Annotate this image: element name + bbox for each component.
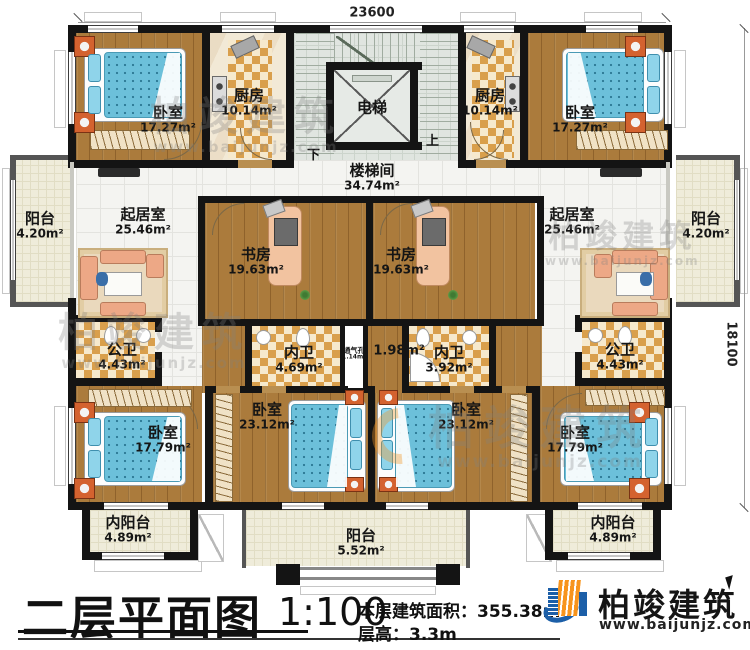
room-area: 4.20m² bbox=[682, 228, 729, 242]
room-name: 卧室 bbox=[438, 401, 494, 418]
balcony-threshold bbox=[70, 162, 74, 298]
computer-monitor bbox=[422, 218, 446, 246]
corridor-area-label: 1.98m² bbox=[373, 345, 424, 360]
window-sill bbox=[674, 406, 686, 486]
wall bbox=[68, 378, 162, 386]
wall bbox=[402, 386, 496, 393]
sofa bbox=[100, 250, 146, 264]
room-area: 10.14m² bbox=[462, 105, 518, 119]
room-label-bath-public-l: 公卫 4.43m² bbox=[98, 341, 145, 372]
room-name: 楼梯间 bbox=[344, 162, 400, 179]
room-label-balcony-r: 阳台 4.20m² bbox=[682, 210, 729, 241]
room-label-bath-en-l: 内卫 4.69m² bbox=[275, 344, 322, 375]
room-area: 17.79m² bbox=[547, 442, 603, 456]
armchair bbox=[146, 254, 164, 278]
window bbox=[568, 552, 630, 560]
dimension-width: 23600 bbox=[349, 6, 394, 21]
nightstand bbox=[629, 478, 650, 499]
balcony-wall bbox=[676, 302, 740, 307]
dimension-line bbox=[78, 22, 666, 23]
window-sill bbox=[2, 168, 10, 294]
room-name: 卧室 bbox=[552, 104, 608, 121]
room-area: 19.63m² bbox=[228, 264, 284, 278]
balcony-window bbox=[734, 180, 740, 280]
wall bbox=[326, 62, 334, 150]
door-opening bbox=[262, 386, 286, 393]
pillow bbox=[647, 86, 660, 114]
room-label-stairwell: 楼梯间 34.74m² bbox=[344, 162, 400, 193]
room-label-vent: 通气孔 1.14m² bbox=[342, 347, 366, 362]
wall bbox=[286, 25, 294, 168]
room-label-kitchen-r: 厨房 10.14m² bbox=[462, 87, 518, 118]
room-name: 阳台 bbox=[682, 210, 729, 227]
window-sill bbox=[54, 50, 66, 128]
pillow bbox=[350, 408, 362, 438]
room-label-bedroom-bcr: 卧室 23.12m² bbox=[438, 401, 494, 432]
wall bbox=[520, 25, 528, 168]
nightstand bbox=[625, 112, 646, 133]
room-label-kitchen-l: 厨房 10.14m² bbox=[221, 87, 277, 118]
balcony-rail bbox=[466, 510, 470, 568]
room-label-living-l: 起居室 25.46m² bbox=[115, 206, 171, 237]
room-area: 34.74m² bbox=[344, 180, 400, 194]
window-sill bbox=[94, 560, 202, 572]
dimension-tick bbox=[73, 13, 82, 22]
balcony-post bbox=[436, 564, 460, 585]
pillow bbox=[645, 450, 658, 478]
door-opening bbox=[216, 386, 240, 393]
room-area: 5.52m² bbox=[337, 545, 384, 559]
window bbox=[330, 25, 422, 33]
room-label-inner-balcony-r: 内阳台 4.89m² bbox=[589, 514, 636, 545]
wall bbox=[245, 319, 252, 393]
person bbox=[640, 272, 652, 286]
room-area: 17.27m² bbox=[552, 122, 608, 136]
door-opening bbox=[155, 332, 162, 352]
room-name: 内卫 bbox=[275, 344, 322, 361]
room-area: 4.43m² bbox=[596, 359, 643, 373]
room-area: 25.46m² bbox=[115, 224, 171, 238]
wall bbox=[68, 160, 208, 168]
wall bbox=[326, 62, 422, 70]
room-label-study-r: 书房 19.63m² bbox=[373, 246, 429, 277]
room-area: 4.43m² bbox=[98, 359, 145, 373]
door-opening bbox=[238, 160, 272, 168]
balcony-door bbox=[282, 502, 324, 510]
room-name: 内阳台 bbox=[104, 514, 151, 531]
room-name: 卧室 bbox=[140, 104, 196, 121]
room-label-balcony-l: 阳台 4.20m² bbox=[16, 210, 63, 241]
room-name: 书房 bbox=[373, 246, 429, 263]
pillow bbox=[88, 418, 101, 446]
room-area: 4.89m² bbox=[589, 532, 636, 546]
balcony-rail bbox=[242, 510, 246, 568]
window bbox=[222, 25, 274, 33]
title-underline bbox=[18, 638, 560, 640]
balcony-door bbox=[386, 502, 428, 510]
room-name: 电梯 bbox=[357, 99, 387, 116]
balcony-rail bbox=[300, 567, 436, 570]
room-area: 4.20m² bbox=[16, 228, 63, 242]
room-name: 阳台 bbox=[337, 527, 384, 544]
floor-height-value: 3.3m bbox=[409, 625, 457, 645]
window bbox=[88, 25, 138, 33]
sofa bbox=[612, 250, 658, 264]
room-name: 厨房 bbox=[221, 87, 277, 104]
balcony-post bbox=[276, 564, 300, 585]
room-area: 10.14m² bbox=[221, 105, 277, 119]
nightstand bbox=[345, 477, 364, 492]
nightstand bbox=[74, 478, 95, 499]
wall bbox=[537, 196, 544, 326]
room-area: 17.79m² bbox=[135, 442, 191, 456]
window bbox=[102, 552, 164, 560]
room-name: 卧室 bbox=[547, 424, 603, 441]
wall bbox=[575, 378, 672, 386]
pillow bbox=[645, 418, 658, 446]
room-label-bath-public-r: 公卫 4.43m² bbox=[596, 341, 643, 372]
wall bbox=[489, 319, 496, 393]
pillow bbox=[350, 440, 362, 470]
balcony-door bbox=[104, 502, 168, 510]
window-sill bbox=[460, 12, 516, 22]
plant bbox=[448, 290, 458, 300]
room-label-bedroom-br: 卧室 17.79m² bbox=[547, 424, 603, 455]
ac-platform bbox=[198, 514, 224, 562]
computer-monitor bbox=[274, 218, 298, 246]
elevator-door bbox=[352, 75, 392, 82]
nightstand bbox=[379, 477, 398, 492]
stair-up-label: 上 bbox=[426, 130, 439, 149]
room-area: 4.69m² bbox=[275, 362, 322, 376]
floor-area-label: 本层建筑面积： bbox=[358, 602, 477, 622]
wall bbox=[245, 386, 348, 393]
room-label-inner-balcony-l: 内阳台 4.89m² bbox=[104, 514, 151, 545]
door-opening bbox=[502, 386, 526, 393]
nightstand bbox=[625, 36, 646, 57]
window-sill bbox=[556, 560, 664, 572]
room-area: 1.14m² bbox=[342, 355, 366, 362]
room-name: 起居室 bbox=[544, 206, 600, 223]
window-sill bbox=[674, 50, 686, 128]
balcony-wall bbox=[10, 302, 74, 307]
coffee-table bbox=[104, 272, 142, 296]
title-underline bbox=[18, 630, 308, 633]
window bbox=[664, 408, 672, 484]
window-sill bbox=[84, 12, 142, 22]
person bbox=[96, 272, 108, 286]
wall bbox=[366, 196, 373, 326]
plant bbox=[300, 290, 310, 300]
door-opening bbox=[575, 332, 582, 352]
balcony-door bbox=[578, 502, 642, 510]
room-label-balcony-b: 阳台 5.52m² bbox=[337, 527, 384, 558]
balcony-wall bbox=[676, 155, 740, 160]
window-sill bbox=[54, 406, 66, 486]
wall bbox=[202, 25, 210, 168]
room-label-bedroom-bcl: 卧室 23.12m² bbox=[239, 401, 295, 432]
floor-area-line: 本层建筑面积：355.38m² bbox=[358, 597, 568, 622]
floor-height-line: 层高：3.3m bbox=[358, 620, 457, 645]
balcony-rail bbox=[300, 577, 436, 580]
logo-building-icon bbox=[555, 580, 581, 616]
room-name: 卧室 bbox=[239, 401, 295, 418]
room-area: 17.27m² bbox=[140, 122, 196, 136]
room-label-bedroom-tl: 卧室 17.27m² bbox=[140, 104, 196, 135]
floor-plan-page: 卧室 17.27m² 厨房 10.14m² 电梯 厨房 10.14m² 卧室 1… bbox=[0, 0, 750, 650]
room-area: 25.46m² bbox=[544, 224, 600, 238]
sofa bbox=[100, 302, 146, 316]
room-area: 23.12m² bbox=[239, 419, 295, 433]
logo-building-icon bbox=[548, 588, 558, 616]
room-name: 书房 bbox=[228, 246, 284, 263]
room-name: 厨房 bbox=[462, 87, 518, 104]
window bbox=[464, 25, 514, 33]
wall bbox=[532, 386, 540, 510]
wall bbox=[528, 160, 672, 168]
room-name: 公卫 bbox=[596, 341, 643, 358]
balcony-wall bbox=[10, 155, 74, 160]
tv bbox=[600, 168, 642, 177]
room-name: 阳台 bbox=[16, 210, 63, 227]
room-name: 公卫 bbox=[98, 341, 145, 358]
dimension-height: 18100 bbox=[724, 321, 739, 366]
sink bbox=[462, 330, 477, 345]
room-area: 23.12m² bbox=[438, 419, 494, 433]
closet bbox=[510, 394, 528, 502]
nightstand bbox=[345, 390, 364, 405]
room-area: 4.89m² bbox=[104, 532, 151, 546]
window bbox=[664, 52, 672, 124]
logo-building-icon bbox=[579, 592, 587, 616]
tv bbox=[98, 168, 140, 177]
door-opening bbox=[450, 386, 474, 393]
room-area: 3.92m² bbox=[425, 362, 472, 376]
wardrobe bbox=[585, 389, 665, 406]
room-label-bedroom-tr: 卧室 17.27m² bbox=[552, 104, 608, 135]
dimension-line bbox=[744, 28, 745, 508]
room-name: 内卫 bbox=[425, 344, 472, 361]
pillow bbox=[88, 86, 101, 114]
nightstand bbox=[74, 112, 95, 133]
door-opening bbox=[476, 160, 506, 168]
stair-down-label: 下 bbox=[307, 144, 320, 163]
room-label-bath-en-r: 内卫 3.92m² bbox=[425, 344, 472, 375]
closet bbox=[215, 394, 233, 502]
wall bbox=[326, 142, 422, 150]
balcony-window bbox=[10, 180, 16, 280]
wardrobe bbox=[88, 389, 192, 407]
window-sill bbox=[584, 12, 642, 22]
room-label-elevator: 电梯 bbox=[357, 99, 387, 116]
nightstand bbox=[379, 390, 398, 405]
company-website: www.baijunjz.com bbox=[599, 617, 750, 633]
room-name: 卧室 bbox=[135, 424, 191, 441]
pillow bbox=[88, 450, 101, 478]
room-label-bedroom-bl: 卧室 17.79m² bbox=[135, 424, 191, 455]
window bbox=[586, 25, 638, 33]
room-area: 1.98m² bbox=[373, 345, 424, 360]
floor-height-label: 层高： bbox=[358, 625, 409, 645]
wall bbox=[198, 196, 205, 326]
room-area: 19.63m² bbox=[373, 264, 429, 278]
wall bbox=[410, 62, 418, 150]
room-name: 起居室 bbox=[115, 206, 171, 223]
pillow bbox=[88, 54, 101, 82]
sink bbox=[256, 330, 271, 345]
room-label-living-r: 起居室 25.46m² bbox=[544, 206, 600, 237]
sofa bbox=[612, 302, 658, 316]
window-sill bbox=[220, 12, 276, 22]
dimension-tick bbox=[661, 13, 670, 22]
armchair bbox=[594, 254, 612, 278]
room-label-study-l: 书房 19.63m² bbox=[228, 246, 284, 277]
room-name: 内阳台 bbox=[589, 514, 636, 531]
pillow bbox=[647, 54, 660, 82]
wall bbox=[205, 386, 213, 510]
